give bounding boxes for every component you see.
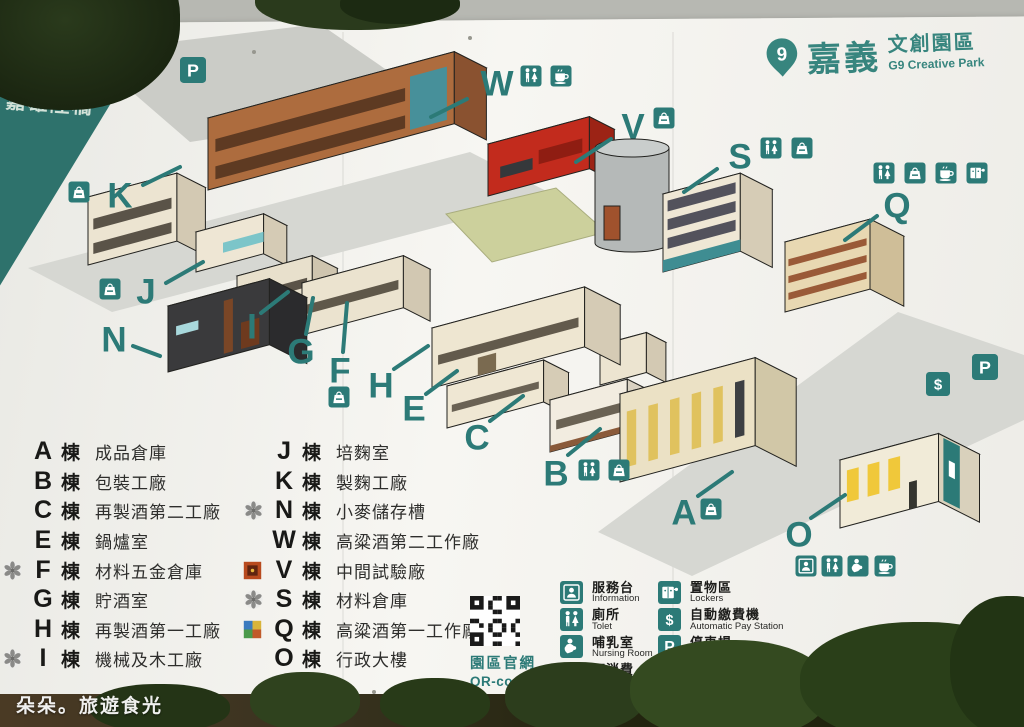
toilet-icon — [874, 163, 895, 184]
svg-text:$: $ — [666, 613, 674, 629]
info-icon — [796, 556, 817, 577]
legend-row-Q: Q棟高粱酒第一工作廠 — [243, 615, 480, 645]
bush — [380, 678, 490, 727]
locker-icon — [658, 581, 681, 604]
legend-letter: H — [25, 615, 61, 644]
facility-label-en: Automatic Pay Station — [690, 622, 783, 632]
facility-row-locker: 置物區Lockers — [658, 579, 783, 606]
legend-suffix: 棟 — [61, 645, 80, 672]
marker-letter-S: S — [728, 138, 751, 177]
bolt — [252, 50, 256, 54]
legend-suffix: 棟 — [61, 586, 80, 613]
marker-letter-V: V — [621, 108, 645, 147]
marker-letter-W: W — [480, 65, 513, 104]
dollar-icon: $ — [926, 372, 950, 396]
marker-letter-F: F — [329, 352, 350, 391]
marker-letter-J: J — [136, 273, 155, 312]
legend-building-name: 鍋爐室 — [95, 528, 149, 553]
marker-letter-H: H — [368, 367, 393, 406]
legend-row-C: C棟再製酒第二工廠 — [2, 496, 221, 526]
svg-text:$: $ — [934, 377, 943, 394]
stamp-placeholder — [243, 471, 266, 492]
flower-stamp-icon — [2, 648, 25, 669]
stamp-placeholder — [2, 619, 25, 640]
legend-suffix: 棟 — [302, 645, 321, 672]
marker-letter-Q: Q — [883, 187, 910, 226]
legend-letter: O — [266, 644, 302, 673]
bag-icon — [654, 108, 675, 129]
facility-label-zh: 哺乳室 — [592, 636, 653, 649]
legend-building-name: 行政大樓 — [336, 646, 408, 671]
legend-building-name: 材料倉庫 — [336, 587, 408, 612]
legend-suffix: 棟 — [61, 527, 80, 554]
legend-letter: E — [25, 526, 61, 555]
nursing-icon — [560, 635, 583, 658]
bolt — [468, 36, 472, 40]
toilet-icon — [521, 66, 542, 87]
legend-letter: Q — [266, 615, 302, 644]
legend-suffix: 棟 — [302, 586, 321, 613]
legend-row-S: S棟材料倉庫 — [243, 585, 480, 615]
marker-letter-K: K — [107, 177, 132, 216]
legend-suffix: 棟 — [61, 616, 80, 643]
building-S — [663, 173, 772, 272]
bag-icon — [69, 182, 90, 203]
marker-letter-B: B — [543, 455, 568, 494]
cup-icon — [551, 66, 572, 87]
legend-suffix: 棟 — [302, 527, 321, 554]
marker-letter-A: A — [671, 494, 696, 533]
facility-label-en: Nursing Room — [592, 649, 653, 659]
svg-text:P: P — [979, 358, 991, 378]
legend-building-name: 中間試驗廠 — [336, 558, 426, 583]
legend-letter: N — [266, 496, 302, 525]
legend-letter: C — [25, 496, 61, 525]
dollar-icon: $ — [658, 608, 681, 631]
photo-of-park-map-sign: WVSQKJNIGFHECBAOP$P 嘉雄陸橋 9 嘉義 文創園區 G9 Cr… — [0, 0, 1024, 727]
facility-label-en: Lockers — [690, 594, 732, 604]
marker-letter-I: I — [247, 308, 257, 347]
legend-building-name: 再製酒第二工廠 — [95, 498, 221, 523]
legend-letter: K — [266, 467, 302, 496]
photographer-watermark: 朵朵。旅遊食光 — [16, 691, 163, 718]
legend-letter: W — [266, 526, 302, 555]
legend-row-E: E棟鍋爐室 — [2, 526, 221, 556]
legend-building-name: 成品倉庫 — [95, 439, 167, 464]
legend-row-N: N棟小麥儲存槽 — [243, 496, 480, 526]
legend-suffix: 棟 — [302, 616, 321, 643]
bag-icon — [100, 279, 121, 300]
flower-stamp-icon — [2, 560, 25, 581]
marker-letter-N: N — [101, 321, 126, 360]
legend-row-I: I棟機械及木工廠 — [2, 644, 221, 674]
facility-label-zh: 廁所 — [592, 608, 620, 621]
logo-name-en: G9 Creative Park — [888, 56, 984, 72]
legend-building-name: 培麴室 — [336, 439, 390, 464]
legend-suffix: 棟 — [61, 557, 80, 584]
logo-pin-digit: 9 — [776, 44, 787, 65]
stamp-placeholder — [243, 648, 266, 669]
legend-row-G: G棟貯酒室 — [2, 585, 221, 615]
cup-icon — [875, 556, 896, 577]
logo-type-zh: 文創園區 — [887, 32, 984, 56]
legend-building-name: 機械及木工廠 — [95, 646, 203, 671]
legend-row-J: J棟培麴室 — [243, 437, 480, 467]
stamp-placeholder — [2, 530, 25, 551]
map-marker-N: N — [101, 321, 160, 360]
bush — [250, 672, 360, 727]
stamp-placeholder — [2, 500, 25, 521]
marker-letter-O: O — [785, 516, 812, 555]
legend-letter: I — [25, 644, 61, 673]
logo-pin-icon: 9 — [763, 35, 801, 80]
art_color-stamp-icon — [243, 619, 266, 640]
legend-row-K: K棟製麴工廠 — [243, 467, 480, 497]
marker-letter-G: G — [287, 333, 314, 372]
legend-building-name: 貯酒室 — [95, 587, 149, 612]
legend-row-H: H棟再製酒第一工廠 — [2, 615, 221, 645]
toilet-icon — [579, 460, 600, 481]
legend-row-W: W棟高粱酒第二工作廠 — [243, 526, 480, 556]
legend-letter: S — [266, 585, 302, 614]
bag-icon — [701, 499, 722, 520]
legend-row-F: F棟材料五金倉庫 — [2, 555, 221, 585]
stamp-placeholder — [2, 589, 25, 610]
building-legend: A棟成品倉庫B棟包裝工廠C棟再製酒第二工廠E棟鍋爐室F棟材料五金倉庫G棟貯酒室H… — [2, 437, 480, 674]
legend-row-V: V棟中間試驗廠 — [243, 555, 480, 585]
facility-label-zh: 自動繳費機 — [690, 608, 783, 621]
info-icon — [560, 581, 583, 604]
toilet-icon — [560, 608, 583, 631]
legend-building-name: 高粱酒第二工作廠 — [336, 528, 480, 553]
legend-letter: G — [25, 585, 61, 614]
legend-suffix: 棟 — [302, 438, 321, 465]
legend-suffix: 棟 — [61, 438, 80, 465]
facility-row-toilet: 廁所Tolet — [560, 606, 653, 633]
flower-stamp-icon — [243, 500, 266, 521]
art_red-stamp-icon — [243, 560, 266, 581]
parking-icon: P — [180, 57, 206, 83]
parking-icon: P — [972, 354, 998, 380]
building-silo — [595, 139, 669, 252]
building-Q — [785, 219, 904, 312]
legend-letter: J — [266, 437, 302, 466]
facility-label-zh: 置物區 — [690, 581, 732, 594]
stamp-placeholder — [2, 471, 25, 492]
legend-building-name: 高粱酒第一工作廠 — [336, 617, 480, 642]
legend-suffix: 棟 — [302, 468, 321, 495]
qr-code — [470, 596, 520, 646]
legend-building-name: 製麴工廠 — [336, 469, 408, 494]
facility-label-en: Information — [592, 594, 640, 604]
legend-letter: A — [25, 437, 61, 466]
svg-text:P: P — [187, 61, 199, 81]
legend-suffix: 棟 — [302, 557, 321, 584]
legend-suffix: 棟 — [61, 468, 80, 495]
bag-icon — [609, 460, 630, 481]
stamp-placeholder — [243, 441, 266, 462]
facility-label-zh: 服務台 — [592, 581, 640, 594]
bag-icon — [329, 387, 350, 408]
bush — [505, 662, 645, 727]
flower-stamp-icon — [243, 589, 266, 610]
legend-row-B: B棟包裝工廠 — [2, 467, 221, 497]
marker-letter-E: E — [402, 390, 425, 429]
park-logo: 9 嘉義 文創園區 G9 Creative Park — [763, 26, 985, 83]
legend-suffix: 棟 — [61, 497, 80, 524]
stamp-placeholder — [2, 441, 25, 462]
legend-row-A: A棟成品倉庫 — [2, 437, 221, 467]
legend-building-name: 再製酒第一工廠 — [95, 617, 221, 642]
legend-building-name: 材料五金倉庫 — [95, 558, 203, 583]
facility-label-en: Tolet — [592, 622, 620, 632]
legend-row-O: O棟行政大樓 — [243, 644, 480, 674]
stamp-placeholder — [243, 530, 266, 551]
bag-icon — [792, 138, 813, 159]
facility-row-info: 服務台Information — [560, 579, 653, 606]
logo-name-zh: 嘉義 — [806, 30, 882, 82]
legend-letter: F — [25, 556, 61, 585]
bag-icon — [905, 163, 926, 184]
facility-row-nursing: 哺乳室Nursing Room — [560, 633, 653, 660]
legend-building-name: 小麥儲存槽 — [336, 498, 426, 523]
toilet-icon — [822, 556, 843, 577]
facility-row-dollar: $自動繳費機Automatic Pay Station — [658, 606, 783, 633]
legend-suffix: 棟 — [302, 497, 321, 524]
toilet-icon — [761, 138, 782, 159]
legend-building-name: 包裝工廠 — [95, 469, 167, 494]
locker-icon — [967, 163, 988, 184]
legend-letter: B — [25, 467, 61, 496]
cup-icon — [936, 163, 957, 184]
nursing-icon — [848, 556, 869, 577]
legend-letter: V — [266, 556, 302, 585]
